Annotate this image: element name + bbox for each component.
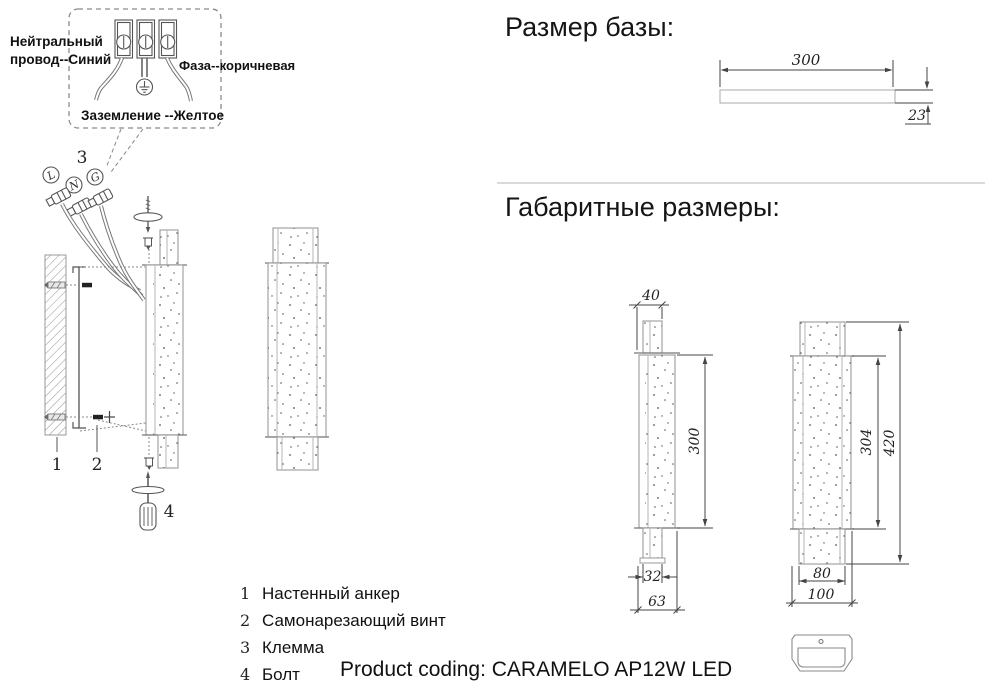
legend-label-1: Настенный анкер <box>262 584 400 604</box>
dim-side-top: 40 <box>641 288 660 304</box>
dim-front-tube: 80 <box>813 566 831 582</box>
legend-num-3: 3 <box>240 638 262 657</box>
screwdriver-icon <box>132 471 164 530</box>
legend-num-2: 2 <box>240 611 262 630</box>
wall-anchor-top <box>44 282 92 288</box>
legend-num-4: 4 <box>240 665 262 684</box>
screw-washer-icon <box>134 196 162 233</box>
callout-2: 2 <box>92 455 103 475</box>
side-view-drawing: 40 300 32 <box>628 288 713 614</box>
legend-label-3: Клемма <box>262 638 324 658</box>
legend-label-4: Болт <box>262 665 300 685</box>
legend-label-2: Самонарезающий винт <box>262 611 446 631</box>
base-size-title: Размер базы: <box>505 12 674 43</box>
earth-symbol-icon <box>137 79 153 95</box>
anchor-plug-icon <box>143 238 153 250</box>
legend-item-1: 1 Настенный анкер <box>240 584 446 611</box>
cross-screw-icon <box>104 411 115 423</box>
dim-front-base: 100 <box>808 587 835 603</box>
legend-num-1: 1 <box>240 584 262 603</box>
top-view-drawing <box>792 635 852 671</box>
dim-front-body: 304 <box>859 429 875 456</box>
overall-size-title: Габаритные размеры: <box>505 192 780 223</box>
dim-front-total: 420 <box>882 430 898 458</box>
lamp-assembled <box>265 228 329 470</box>
dim-base-thickness: 23 <box>907 108 926 124</box>
product-coding: Product coding: CARAMELO AP12W LED <box>340 658 732 682</box>
callout-4: 4 <box>164 502 175 522</box>
supply-wires <box>62 204 144 300</box>
ground-wire-label: Заземление --Желтое <box>81 107 224 125</box>
dim-base-width: 300 <box>792 51 821 69</box>
callout-3: 3 <box>77 148 88 168</box>
dim-side-tube: 32 <box>644 569 662 585</box>
callout-leaders <box>106 129 143 172</box>
legend-item-2: 2 Самонарезающий винт <box>240 611 446 638</box>
dim-side-height: 300 <box>687 428 703 455</box>
phase-wire-label: Фаза--коричневая <box>179 57 295 75</box>
lamp-mounted <box>142 230 187 468</box>
base-size-drawing: 300 23 <box>720 51 933 124</box>
bolt-icon <box>144 458 154 470</box>
neutral-wire-label: Нейтральный провод--Синий <box>10 33 114 69</box>
front-view-drawing: 304 420 80 100 <box>786 322 909 671</box>
technical-drawing: L N G <box>0 0 1000 690</box>
callout-1: 1 <box>52 455 63 475</box>
construction-lines <box>80 249 149 455</box>
mounting-bracket <box>73 267 86 428</box>
dim-side-base: 63 <box>648 594 666 610</box>
instruction-sheet: L N G <box>0 0 1000 690</box>
